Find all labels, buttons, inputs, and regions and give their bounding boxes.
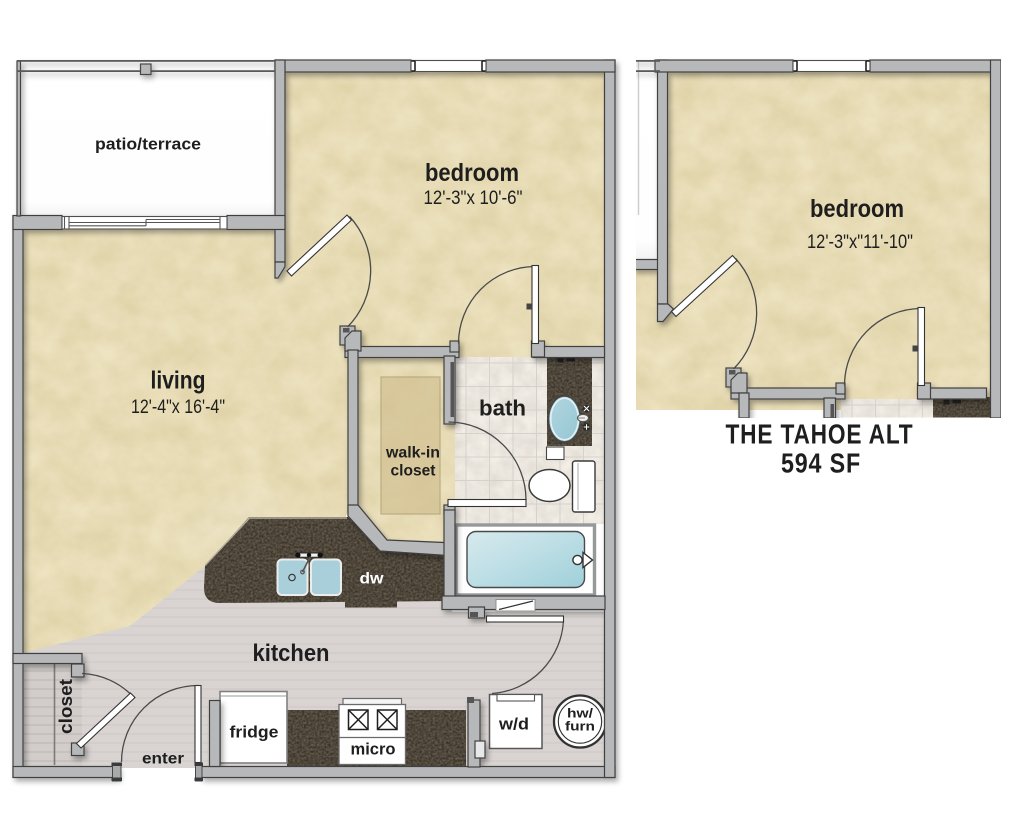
svg-text:12'-4"x 16'-4": 12'-4"x 16'-4"	[131, 396, 225, 418]
svg-text:12'-3"x 10'-6": 12'-3"x 10'-6"	[424, 187, 523, 209]
svg-text:594 SF: 594 SF	[781, 448, 861, 479]
svg-text:closet: closet	[56, 679, 76, 734]
svg-text:hw/: hw/	[567, 707, 594, 721]
svg-text:closet: closet	[391, 463, 436, 480]
svg-text:dw: dw	[360, 571, 385, 588]
svg-text:bedroom: bedroom	[425, 159, 519, 187]
svg-text:fridge: fridge	[230, 724, 279, 742]
svg-text:kitchen: kitchen	[253, 640, 330, 667]
svg-text:bath: bath	[479, 396, 526, 421]
svg-text:w/d: w/d	[498, 716, 529, 734]
svg-text:patio/terrace: patio/terrace	[95, 136, 201, 154]
svg-text:walk-in: walk-in	[385, 445, 440, 462]
svg-text:THE TAHOE ALT: THE TAHOE ALT	[726, 419, 914, 450]
svg-text:living: living	[151, 367, 206, 395]
svg-text:bedroom: bedroom	[810, 195, 904, 223]
svg-text:12'-3"x"11'-10": 12'-3"x"11'-10"	[807, 231, 913, 253]
svg-text:furn: furn	[565, 720, 595, 734]
svg-text:enter: enter	[142, 751, 184, 768]
svg-text:micro: micro	[351, 741, 396, 759]
